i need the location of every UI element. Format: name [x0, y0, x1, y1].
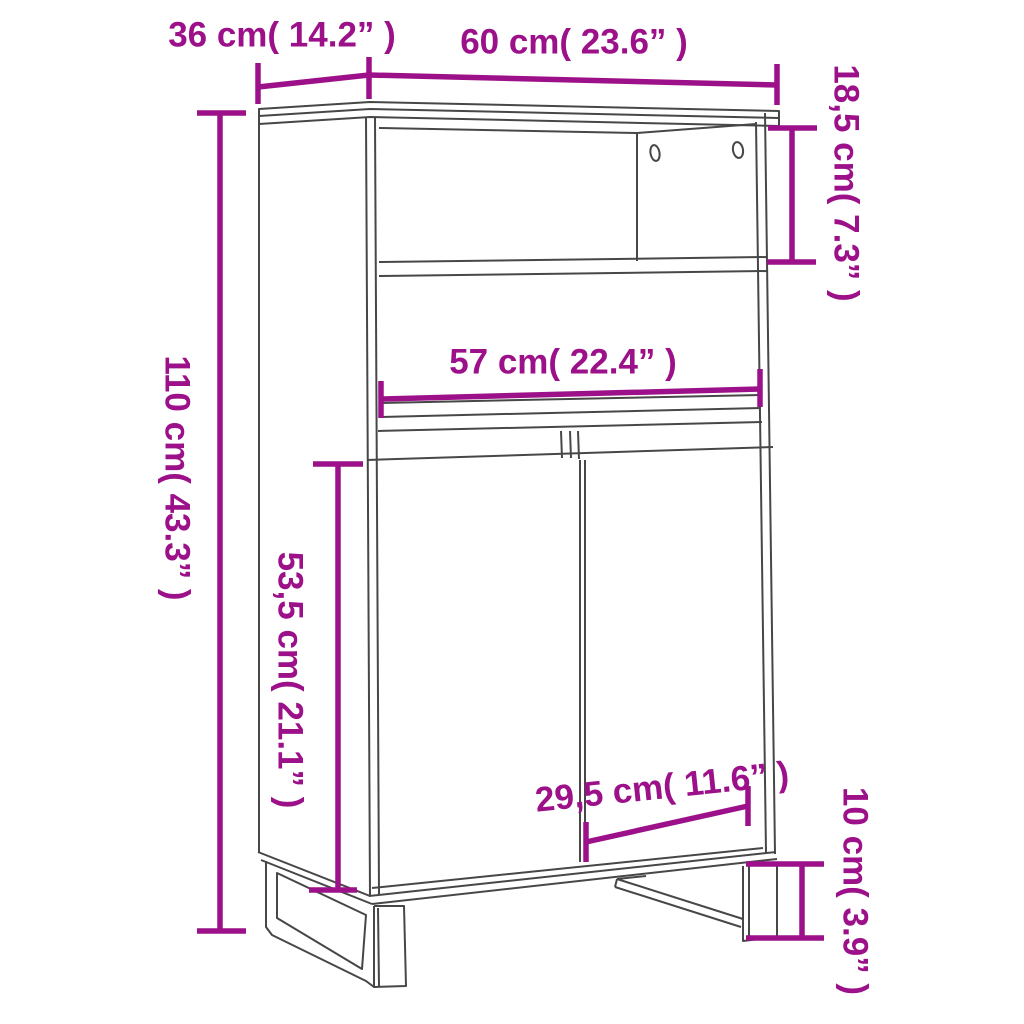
bottom-shelf-band — [367, 395, 773, 460]
dim-label-inner-width: 57 cm( 22.4” ) — [449, 345, 677, 380]
shelf-height-dimension-line — [767, 128, 817, 262]
cam-hole-left — [649, 144, 661, 161]
top-panel — [259, 102, 779, 126]
dim-label-depth: 36 cm( 14.2” ) — [168, 18, 396, 53]
dim-label-width: 60 cm( 23.6” ) — [460, 25, 688, 60]
leg-height-dimension-line — [746, 864, 824, 938]
door-gap — [372, 460, 763, 888]
furniture-dimension-diagram: 36 cm( 14.2” ) 60 cm( 23.6” ) 18,5 cm( 7… — [0, 0, 1024, 1024]
middle-shelf — [379, 257, 767, 276]
dim-label-shelf-height: 18,5 cm( 7.3” ) — [829, 64, 864, 301]
total-height-dimension-line — [197, 113, 246, 931]
depth-dimension-line — [258, 57, 369, 104]
dim-label-total-height: 110 cm( 43.3” ) — [160, 355, 195, 600]
door-height-dimension-line — [309, 464, 363, 890]
back-panel — [637, 133, 744, 261]
cam-hole-right — [732, 141, 745, 158]
dim-label-door-height: 53,5 cm( 21.1” ) — [273, 552, 308, 809]
dim-label-leg-height: 10 cm( 3.9” ) — [838, 787, 873, 995]
width-dimension-line — [369, 64, 777, 105]
